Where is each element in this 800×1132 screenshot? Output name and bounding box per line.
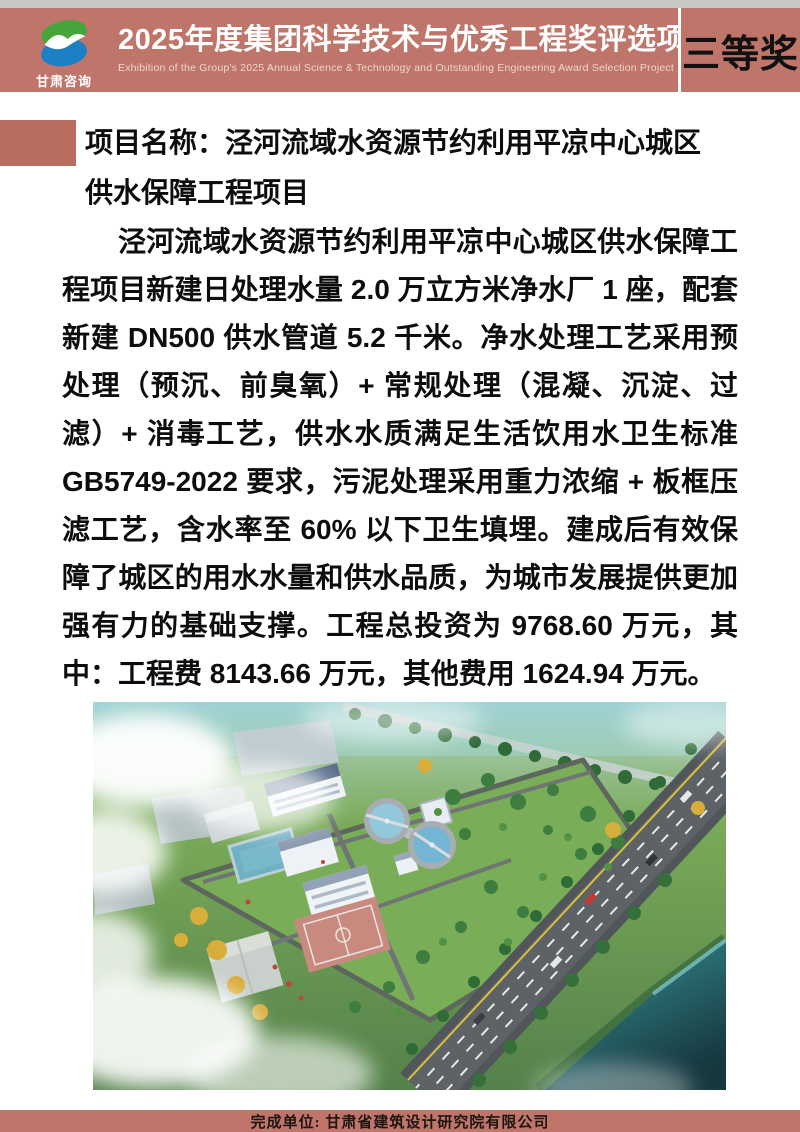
poster-body: 项目名称：泾河流域水资源节约利用平凉中心城区 供水保障工程项目 泾河流域水资源节… xyxy=(0,92,800,1090)
project-name-line1: 项目名称：泾河流域水资源节约利用平凉中心城区 xyxy=(85,118,800,168)
top-strip xyxy=(0,0,800,8)
header-banner: 甘肃咨询 2025年度集团科学技术与优秀工程奖评选项目展 Exhibition … xyxy=(0,8,800,92)
accent-marker-block xyxy=(0,120,76,166)
project-name: 项目名称：泾河流域水资源节约利用平凉中心城区 供水保障工程项目 xyxy=(85,118,800,218)
project-name-block: 项目名称：泾河流域水资源节约利用平凉中心城区 供水保障工程项目 xyxy=(0,118,800,218)
project-description: 泾河流域水资源节约利用平凉中心城区供水保障工程项目新建日处理水量 2.0 万立方… xyxy=(0,218,800,698)
footer-bar: 完成单位: 甘肃省建筑设计研究院有限公司 xyxy=(0,1110,800,1132)
poster-page: 甘肃咨询 2025年度集团科学技术与优秀工程奖评选项目展 Exhibition … xyxy=(0,0,800,1132)
award-badge: 三等奖 xyxy=(678,8,800,92)
logo-text: 甘肃咨询 xyxy=(16,71,112,90)
project-name-line2: 供水保障工程项目 xyxy=(85,168,800,218)
logo-bird-icon xyxy=(37,16,91,70)
aerial-rendering-figure xyxy=(93,702,726,1090)
banner-title: 2025年度集团科学技术与优秀工程奖评选项目展 xyxy=(118,20,678,60)
footer-credit: 完成单位: 甘肃省建筑设计研究院有限公司 xyxy=(251,1111,550,1132)
aerial-rendering xyxy=(93,702,726,1090)
gansu-consulting-logo: 甘肃咨询 xyxy=(16,16,112,90)
banner-subtitle: Exhibition of the Group's 2025 Annual Sc… xyxy=(118,62,678,74)
